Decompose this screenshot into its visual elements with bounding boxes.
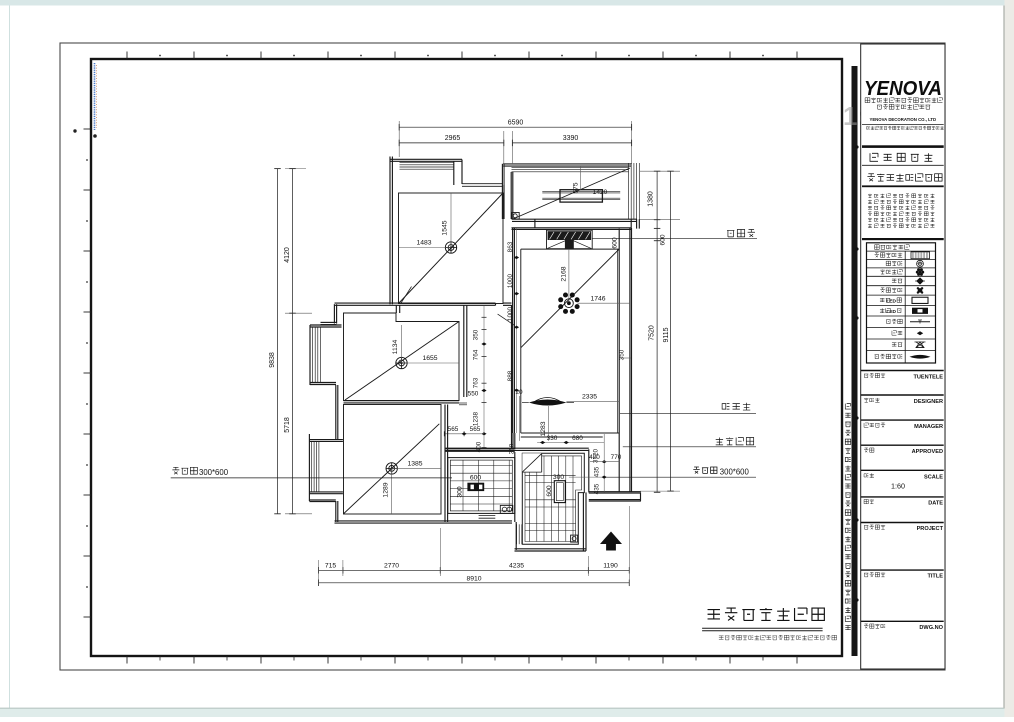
svg-text:565: 565 xyxy=(470,426,481,433)
svg-text:4120: 4120 xyxy=(284,247,291,263)
svg-text:763: 763 xyxy=(473,377,480,388)
svg-text:550: 550 xyxy=(468,391,479,398)
svg-text:2335: 2335 xyxy=(582,394,597,401)
svg-text:600: 600 xyxy=(612,237,619,249)
svg-text:764: 764 xyxy=(473,349,480,360)
svg-text:SCALE: SCALE xyxy=(924,474,943,480)
svg-text:770: 770 xyxy=(611,454,622,461)
svg-text:LED: LED xyxy=(886,298,896,304)
svg-text:2965: 2965 xyxy=(445,135,461,142)
svg-text:300*600: 300*600 xyxy=(720,467,750,476)
svg-text:5718: 5718 xyxy=(284,417,291,433)
svg-text:DESIGNER: DESIGNER xyxy=(914,399,943,405)
svg-text:1289: 1289 xyxy=(383,482,390,497)
svg-text:9115: 9115 xyxy=(663,327,670,342)
svg-text:1380: 1380 xyxy=(648,191,655,207)
svg-text:DATE: DATE xyxy=(928,501,943,507)
svg-text:300: 300 xyxy=(457,486,464,498)
svg-text:1:60: 1:60 xyxy=(891,482,905,491)
svg-text:600: 600 xyxy=(660,234,667,245)
svg-text:1000: 1000 xyxy=(507,306,514,321)
svg-text:1545: 1545 xyxy=(442,220,449,235)
svg-text:APPROVED: APPROVED xyxy=(912,449,943,455)
svg-text:1134: 1134 xyxy=(392,339,399,354)
svg-text:420: 420 xyxy=(589,454,600,461)
svg-text:8910: 8910 xyxy=(466,575,481,582)
svg-text:1238: 1238 xyxy=(473,411,480,426)
svg-text:575: 575 xyxy=(573,182,580,193)
svg-text:1000: 1000 xyxy=(507,273,514,288)
svg-text:LED: LED xyxy=(886,309,896,315)
svg-text:300: 300 xyxy=(553,474,565,481)
svg-text:863: 863 xyxy=(507,241,514,252)
svg-text:888: 888 xyxy=(507,370,514,381)
svg-text:350: 350 xyxy=(473,329,480,340)
svg-text:YENOVA: YENOVA xyxy=(864,77,942,100)
svg-text:YENOVA DECORATION CO., LTD: YENOVA DECORATION CO., LTD xyxy=(869,117,936,122)
svg-text:1483: 1483 xyxy=(416,240,431,247)
svg-text:PROJECT: PROJECT xyxy=(917,526,944,532)
svg-text:2168: 2168 xyxy=(561,266,568,281)
svg-text:1420: 1420 xyxy=(593,189,608,196)
svg-text:350: 350 xyxy=(619,349,626,360)
svg-text:715: 715 xyxy=(325,563,337,570)
svg-text:2770: 2770 xyxy=(384,563,399,570)
svg-text:1190: 1190 xyxy=(603,563,618,570)
svg-text:9838: 9838 xyxy=(269,352,276,368)
svg-text:300*600: 300*600 xyxy=(199,468,229,477)
svg-text:565: 565 xyxy=(448,426,459,433)
svg-text:680: 680 xyxy=(572,435,583,442)
svg-text:4235: 4235 xyxy=(509,563,524,570)
svg-text:6590: 6590 xyxy=(508,120,524,127)
svg-text:3390: 3390 xyxy=(563,135,579,142)
svg-text:600: 600 xyxy=(470,475,482,482)
svg-text:1385: 1385 xyxy=(407,461,422,468)
svg-text:435: 435 xyxy=(594,483,601,494)
svg-text:DWG.NO: DWG.NO xyxy=(919,625,943,631)
svg-text:7520: 7520 xyxy=(649,325,656,341)
svg-text:600: 600 xyxy=(546,485,553,497)
svg-text:MANAGER: MANAGER xyxy=(914,424,943,430)
svg-text:1746: 1746 xyxy=(590,296,605,303)
svg-text:330: 330 xyxy=(547,435,558,442)
svg-text:TUENTELE: TUENTELE xyxy=(913,375,943,381)
svg-text:1655: 1655 xyxy=(422,355,437,362)
svg-text:TITLE: TITLE xyxy=(927,574,943,580)
svg-text:435: 435 xyxy=(594,466,601,477)
